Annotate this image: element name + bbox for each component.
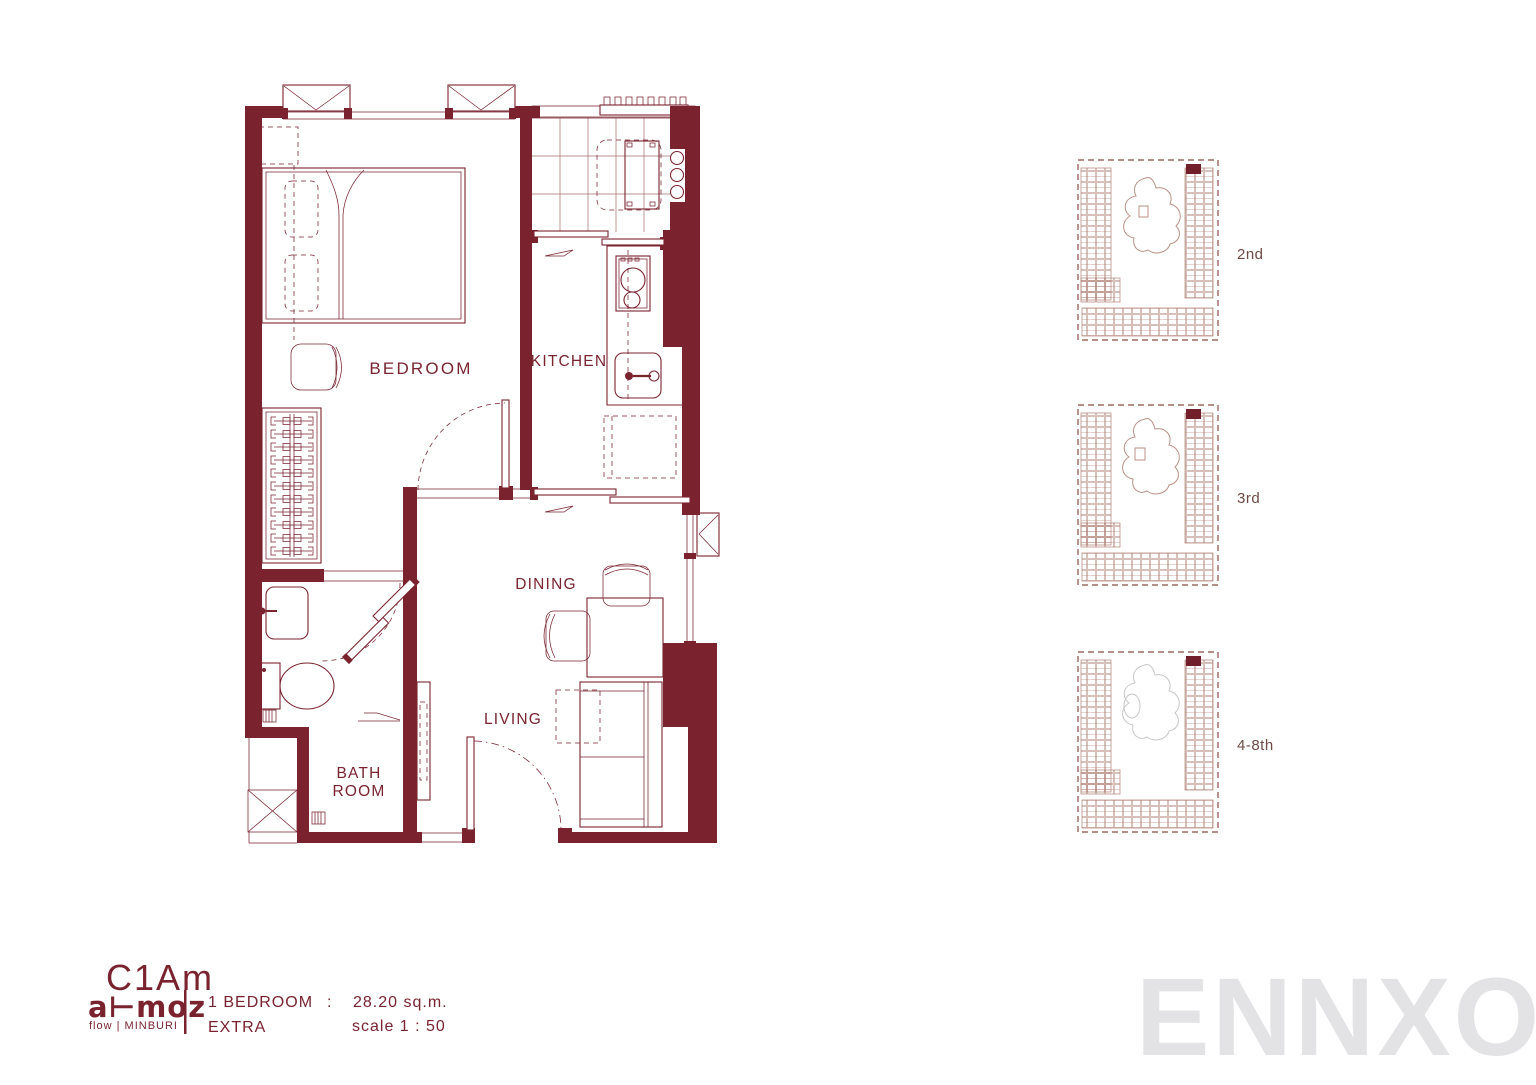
title-divider [184,990,187,1034]
bedroom-door [418,400,509,490]
amenity-outline [1123,664,1180,739]
watermark: ENNXO [1136,956,1536,1079]
side-table [556,690,600,743]
unit-floor-plan: BEDROOM KITCHEN DINING LIVING BATH ROOM [245,85,719,843]
shower-arm [358,713,400,721]
pillow [285,255,318,311]
title-block: C1Am a⊢moz flow | MINBURI 1 BEDROOM : 28… [88,957,448,1036]
bed [262,168,465,323]
brand-subtitle: flow | MINBURI [89,1020,178,1032]
dining-chair-top [603,564,650,606]
floor-plan-sheet: BEDROOM KITCHEN DINING LIVING BATH ROOM … [0,0,1536,1085]
dining-table [587,598,663,677]
entrance-door [467,737,561,830]
bedroom-window-band [283,85,515,119]
spec-separator: : [327,994,332,1011]
window-symbol [283,85,350,111]
bathroom-label-line1: BATH [337,765,382,782]
sofa [580,682,662,827]
bedroom-label: BEDROOM [369,359,472,378]
dining-window-band [687,513,719,645]
bathroom-sink [259,587,309,639]
pillow [285,181,318,237]
wall-vent [670,149,685,202]
brand-logo: a⊢moz [88,990,206,1024]
floor-drain [312,812,325,824]
kitchen-sliding-door [534,489,690,512]
dining-chair-left [544,611,590,661]
living-furniture [417,682,662,827]
stove-burner-large [621,268,645,292]
key-plan-3rd: 3rd [1078,405,1260,585]
floor-drain [263,710,276,722]
ac-unit-space [259,127,298,164]
toilet [258,663,334,709]
amenity-outline [1124,177,1181,252]
living-label: LIVING [484,711,542,728]
key-plan-4-8th-label: 4-8th [1237,737,1274,754]
stove-burner-small [624,292,640,308]
window-symbol [697,513,719,556]
dining-label: DINING [515,576,576,593]
key-plan-2nd: 2nd [1078,160,1264,340]
tv-console [417,682,430,800]
balcony-tile-grid [532,118,670,232]
kitchen-label: KITCHEN [531,353,607,370]
balcony-sliding-door [534,231,664,256]
wardrobe [262,408,321,563]
window-symbol [448,85,515,111]
shaft-hatch [248,790,297,832]
bathroom-label-line2: ROOM [332,783,385,800]
spec-extra: EXTRA [208,1019,266,1036]
fridge-space [604,416,676,478]
amenity-outline [1123,418,1180,493]
bedroom-chair [291,344,342,390]
spec-type: 1 BEDROOM [208,994,313,1011]
key-plan-4-8th: 4-8th [1078,652,1274,832]
key-plan-2nd-label: 2nd [1237,246,1264,263]
key-plan-3rd-label: 3rd [1237,490,1260,507]
spec-scale: scale 1 : 50 [352,1018,446,1035]
washer-unit [597,140,661,210]
walls [245,106,717,843]
spec-area: 28.20 sq.m. [353,994,448,1011]
bedroom-furniture [259,127,465,563]
